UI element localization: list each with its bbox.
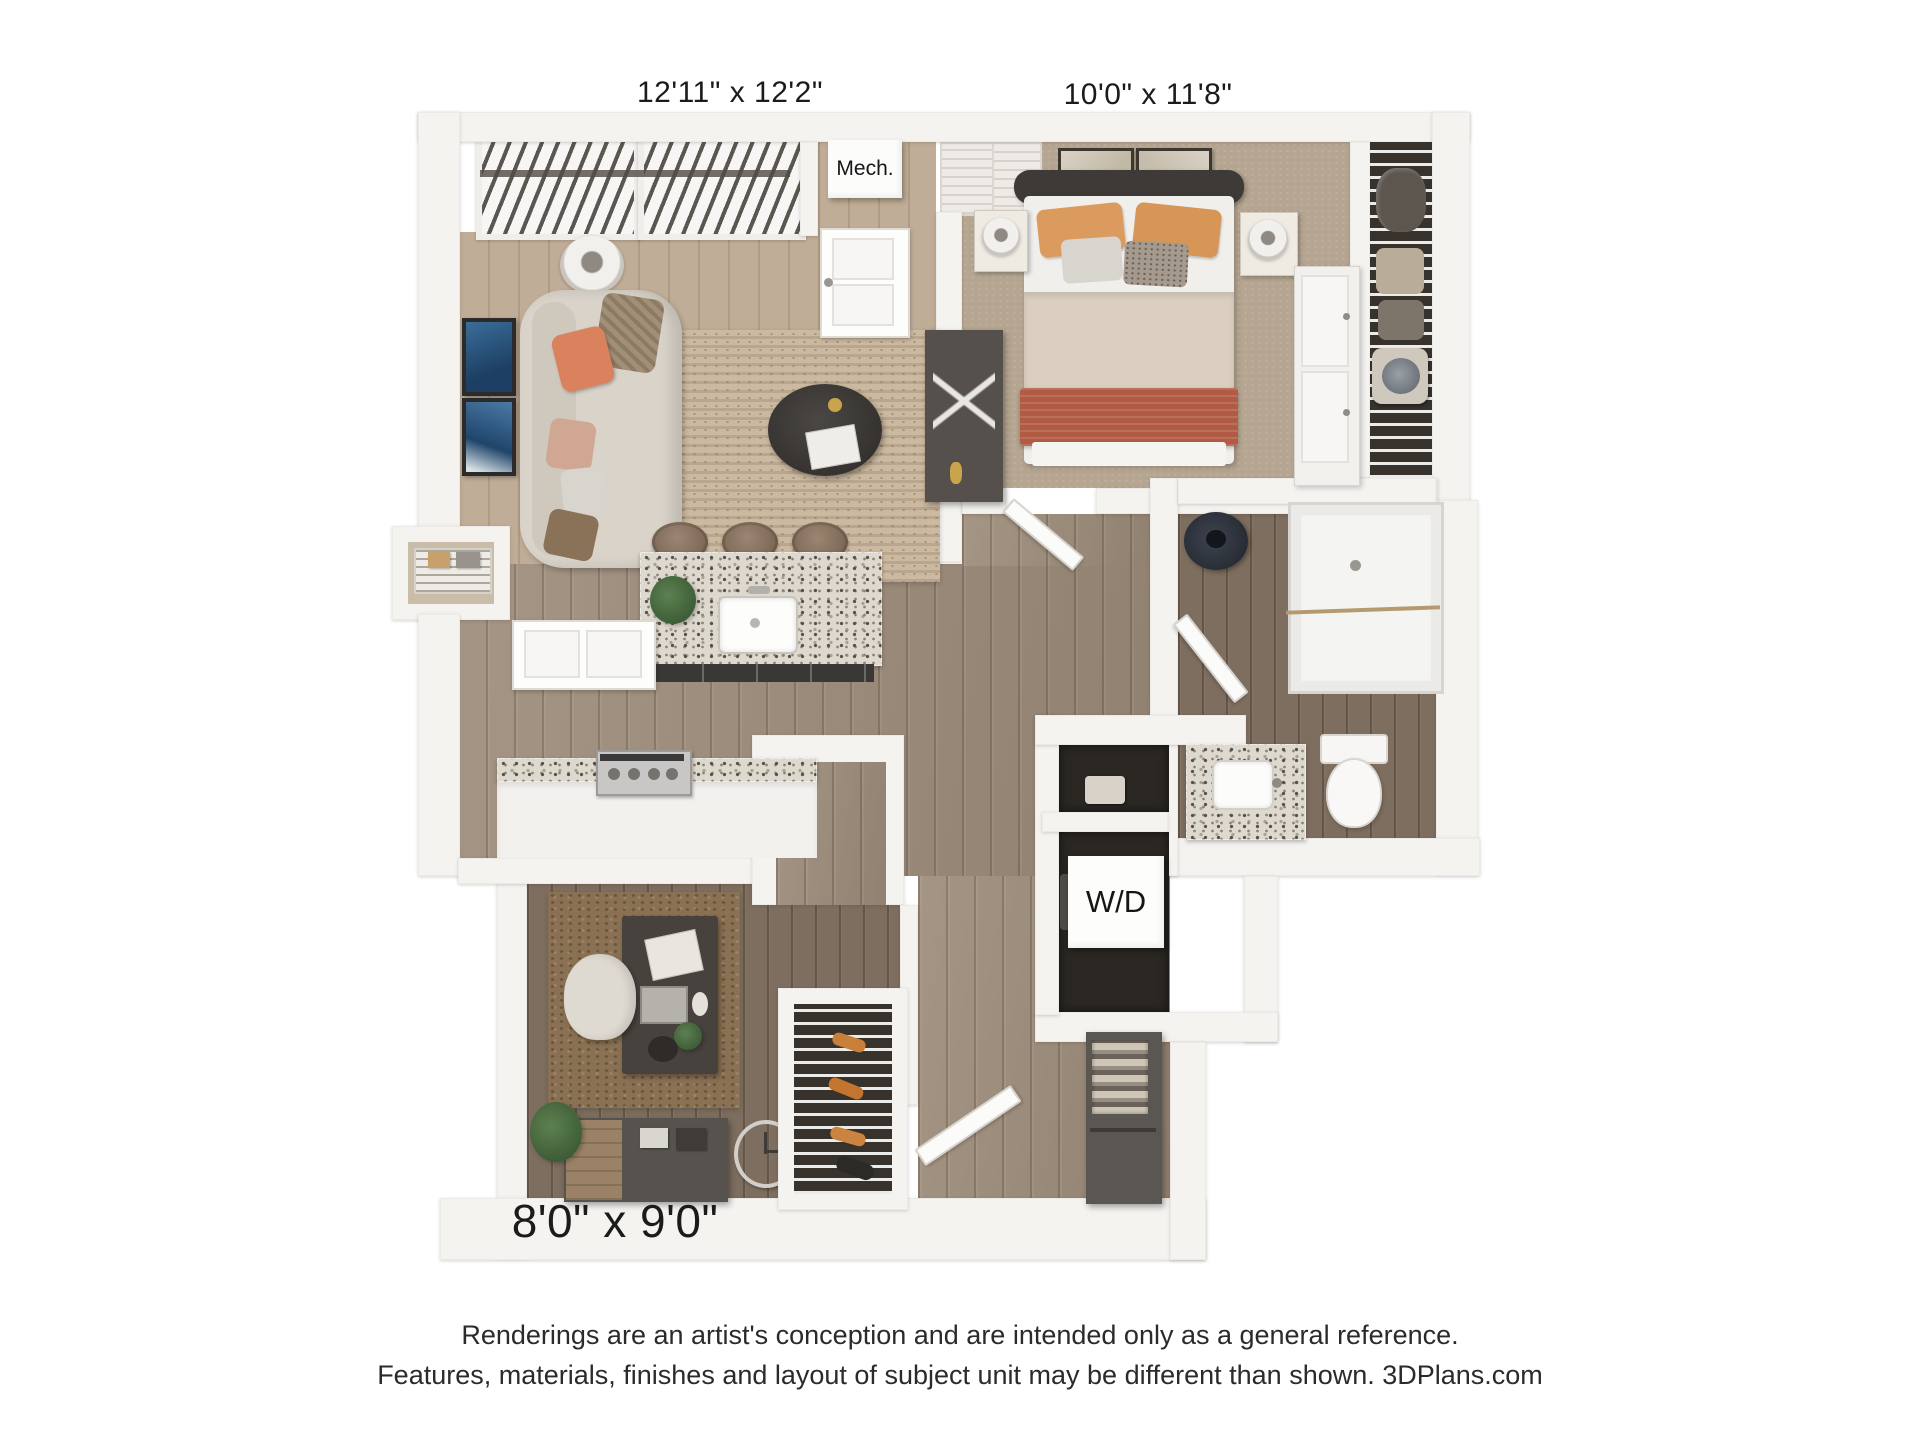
kitchen-door-panel [524,630,580,678]
laundry-wall-left [1035,715,1059,1015]
desk-plant [674,1022,702,1050]
wall-art-frame [462,398,516,476]
shower-drain [1350,560,1361,571]
sofa-pillow-brown [542,507,600,562]
closet-duffel-bag [1376,168,1426,232]
closet-hat [1382,358,1420,394]
closet-folded-clothes [1378,300,1424,340]
media-console-x-decor [933,360,995,442]
hall-wall-right-lower [1170,1042,1206,1260]
laundry-hamper-opening [1206,530,1226,548]
island-plant [650,576,696,624]
vanity-sink [1212,760,1274,810]
pantry-wire-basket [414,548,492,594]
range-burner [608,768,620,780]
pantry-item [456,552,480,568]
bed-blanket-beige [1024,292,1234,392]
range-burner [666,768,678,780]
entry-nook-wall-left [800,142,818,236]
balcony-window-right [638,130,806,240]
hall-desk-books [1092,1040,1148,1114]
bathroom-wall-bottom [1157,838,1480,876]
closet-folded-clothes [1376,248,1424,294]
washer-dryer-unit: W/D [1068,856,1164,948]
kitchen-sink-drain [750,618,760,628]
living-room-dimensions-label: 12'11" x 12'2" [570,76,890,110]
dresser-door-panel [1301,371,1349,463]
sofa-pillow-gray [560,466,609,516]
laundry-shelf-towel [1085,776,1125,804]
credenza-decor-item [676,1128,706,1150]
bedroom-dimensions-label: 10'0" x 11'8" [973,78,1323,112]
entry-door-panel [832,238,894,280]
laundry-shelf-divider-wall [1042,812,1168,832]
exterior-wall-left-mid [418,614,460,876]
desk-laptop [640,986,688,1024]
mech-closet-box: Mech. [828,140,902,198]
entry-door-panel [832,284,894,326]
bed-throw-terracotta [1020,388,1238,446]
entry-door-handle [824,278,833,287]
media-console-gold-decor [950,462,962,484]
balcony-window-left [476,130,640,240]
entry-door [820,228,910,338]
kitchen-range [596,750,692,796]
disclaimer-line-1: Renderings are an artist's conception an… [0,1320,1920,1351]
dresser-door-panel [1301,275,1349,367]
bed-pillow-accent-pattern [1123,240,1189,287]
nightstand-lamp-left [982,218,1020,256]
kitchen-office-wall [458,858,759,884]
mech-closet-label: Mech. [828,140,902,198]
dresser-knob [1343,313,1350,320]
toilet-bowl [1326,758,1382,828]
exterior-wall-top [418,112,1470,142]
kitchen-island-cabinet-base [650,664,874,682]
washer-dryer-label: W/D [1068,856,1164,948]
shower [1288,502,1444,694]
kitchen-entry-door-open [512,620,656,690]
range-burner [648,768,660,780]
disclaimer-line-2: Features, materials, finishes and layout… [0,1360,1920,1391]
sofa-pillow-blush [545,417,598,473]
desk-mouse [692,992,708,1016]
desk-tray [648,1036,678,1062]
hall-desk-shelf-line [1090,1128,1156,1132]
den-dimensions-label: 8'0" x 9'0" [460,1194,770,1248]
bed-sheet-fold [1032,442,1226,466]
office-chair [564,954,636,1040]
floor-plan-rendering: Mech. [0,0,1920,1440]
nightstand-lamp-right [1248,220,1288,260]
kitchen-door-panel [586,630,642,678]
balcony-railing-bar [480,170,790,177]
exterior-wall-right-upper [1432,112,1470,514]
dresser-knob [1343,409,1350,416]
laundry-wall-top [1035,715,1246,745]
office-plant [530,1102,582,1162]
bed-pillow-accent-gray [1061,236,1124,284]
exterior-wall-left-upper [418,112,460,540]
vanity-faucet [1272,778,1282,788]
bedroom-dresser [1294,266,1360,486]
wall-art-frame [462,318,516,396]
kitchen-faucet [748,586,770,594]
credenza-decor-item [640,1128,668,1148]
floor-lamp [560,236,624,294]
coffee-table-vase [828,398,842,412]
range-burner [628,768,640,780]
pantry-item [428,552,450,568]
range-control-strip [600,754,684,761]
